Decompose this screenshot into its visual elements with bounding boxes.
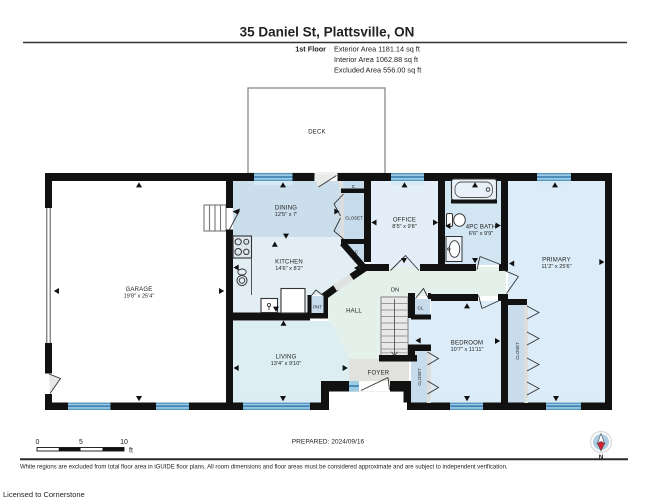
svg-text:DINING: DINING xyxy=(275,206,297,212)
svg-text:6'6" x 9'9": 6'6" x 9'9" xyxy=(469,231,493,237)
svg-text:8'5" x 9'8": 8'5" x 9'8" xyxy=(392,224,416,230)
svg-text:10'7" x 11'11": 10'7" x 11'11" xyxy=(451,347,484,353)
svg-text:GARAGE: GARAGE xyxy=(126,287,153,293)
svg-text:CLOSET: CLOSET xyxy=(515,342,520,360)
svg-text:CLOSET: CLOSET xyxy=(345,216,363,221)
svg-text:CL: CL xyxy=(418,306,424,311)
svg-text:FOYER: FOYER xyxy=(368,371,390,377)
svg-text:12'5" x 7': 12'5" x 7' xyxy=(275,212,297,218)
svg-text:0: 0 xyxy=(36,439,40,446)
svg-text:Exterior Area 1181.14 sq ft: Exterior Area 1181.14 sq ft xyxy=(334,45,420,54)
svg-text:13'4" x 9'10": 13'4" x 9'10" xyxy=(271,361,302,367)
svg-text:Interior Area 1062.88 sq ft: Interior Area 1062.88 sq ft xyxy=(334,55,418,64)
svg-text:PREPARED: 2024/09/16: PREPARED: 2024/09/16 xyxy=(292,439,365,446)
svg-text:KITCHEN: KITCHEN xyxy=(275,260,303,266)
svg-text:Licensed to Cornerstone: Licensed to Cornerstone xyxy=(3,490,85,499)
svg-text:PRIMARY: PRIMARY xyxy=(542,258,571,264)
svg-text:CLOSET: CLOSET xyxy=(417,368,422,386)
svg-text:OFFICE: OFFICE xyxy=(393,218,416,224)
svg-text:19'8" x 25'4": 19'8" x 25'4" xyxy=(124,294,155,300)
svg-text:11'2" x 25'6": 11'2" x 25'6" xyxy=(541,264,571,270)
svg-text:White regions are excluded fro: White regions are excluded from total fl… xyxy=(20,465,508,471)
svg-text:4PC BATH: 4PC BATH xyxy=(466,225,497,231)
svg-text:PNT: PNT xyxy=(313,305,322,310)
svg-text:LIVING: LIVING xyxy=(276,355,297,361)
svg-text:1st Floor: 1st Floor xyxy=(295,45,326,54)
svg-text:DECK: DECK xyxy=(308,130,325,136)
svg-text:DN: DN xyxy=(391,288,399,294)
svg-text:10: 10 xyxy=(120,439,128,446)
svg-text:HALL: HALL xyxy=(346,309,362,315)
svg-text:ft: ft xyxy=(129,448,133,455)
svg-text:BEDROOM: BEDROOM xyxy=(451,341,483,347)
svg-text:14'6" x 8'2": 14'6" x 8'2" xyxy=(275,266,303,272)
svg-text:5: 5 xyxy=(79,439,83,446)
svg-text:35 Daniel St, Plattsville, ON: 35 Daniel St, Plattsville, ON xyxy=(240,25,415,40)
svg-text:Excluded Area 556.00 sq ft: Excluded Area 556.00 sq ft xyxy=(334,66,421,75)
